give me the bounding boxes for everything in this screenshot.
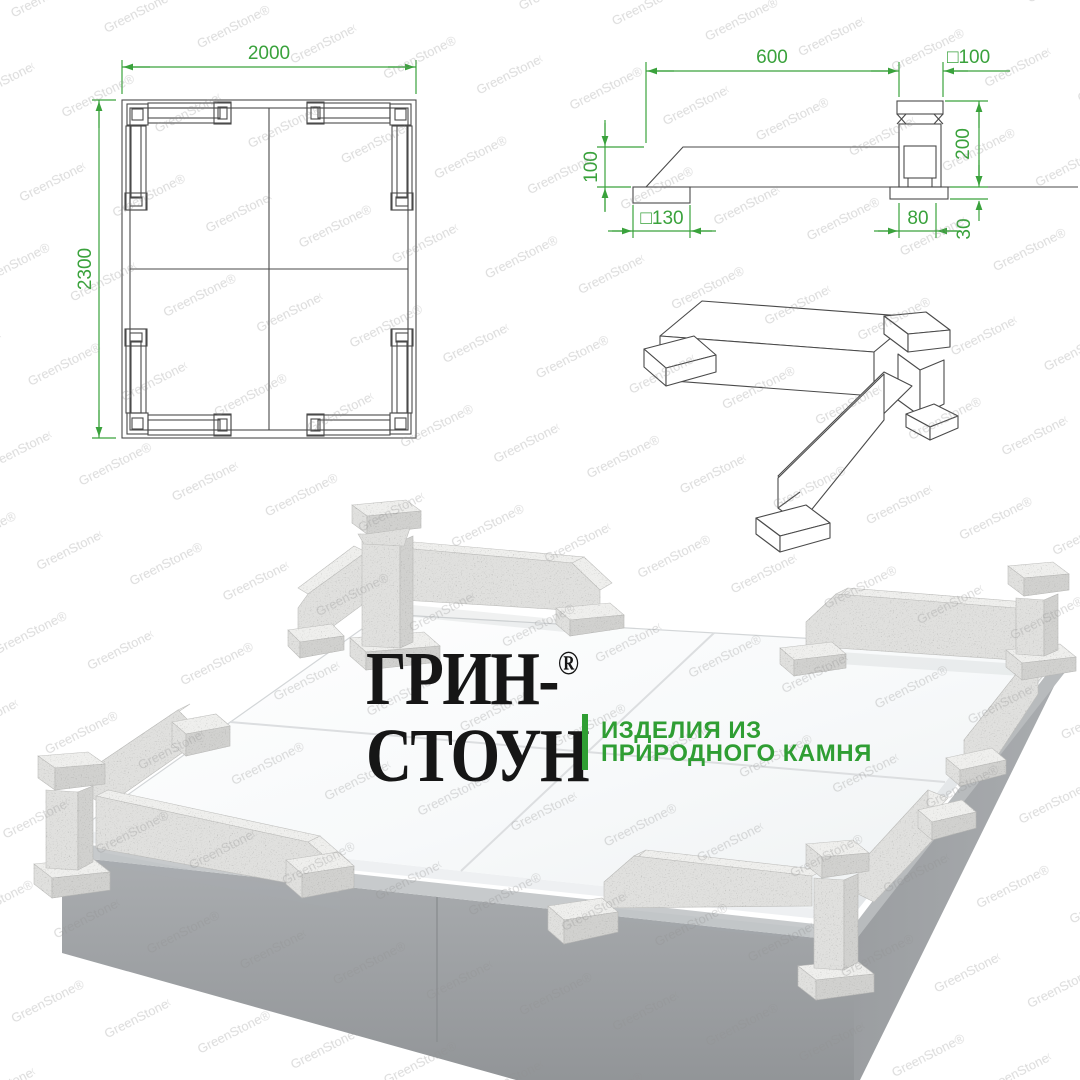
product-sheet: GreenStone® GreenStone®	[0, 0, 1080, 1080]
registered-trademark-icon: ®	[558, 645, 579, 682]
brand-line2: СТОУН	[366, 714, 588, 798]
brand-line1: ГРИН-	[366, 637, 558, 721]
tagline-line1: ИЗДЕЛИЯ ИЗ	[601, 719, 872, 742]
brand-tagline: ИЗДЕЛИЯ ИЗ ПРИРОДНОГО КАМНЯ	[582, 714, 872, 770]
watermark-layer	[0, 0, 1080, 1080]
drawing-scene: GreenStone® GreenStone®	[0, 0, 1080, 1080]
brand-logo: ГРИН-® СТОУН ИЗДЕЛИЯ ИЗ ПРИРОДНОГО КАМНЯ	[366, 648, 926, 808]
tagline-line2: ПРИРОДНОГО КАМНЯ	[601, 742, 872, 765]
